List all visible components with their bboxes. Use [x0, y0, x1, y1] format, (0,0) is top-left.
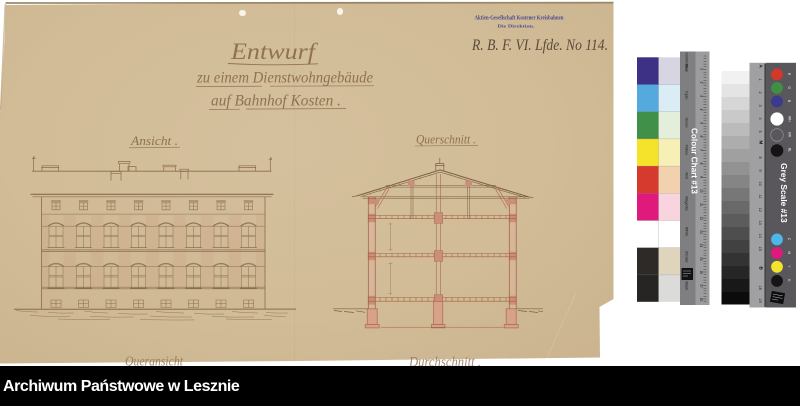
svg-text:Black: Black	[685, 282, 689, 291]
svg-text:Entwurf: Entwurf	[230, 39, 319, 64]
svg-text:M: M	[787, 252, 791, 255]
svg-text:GR: GR	[788, 132, 792, 138]
svg-text:17: 17	[699, 284, 703, 288]
svg-text:3/Color: 3/Color	[685, 251, 689, 263]
svg-text:8: 8	[699, 163, 703, 165]
svg-text:10: 10	[699, 189, 703, 193]
svg-text:13: 13	[758, 221, 762, 225]
svg-text:12: 12	[758, 208, 762, 212]
svg-text:15: 15	[699, 257, 703, 261]
svg-text:14: 14	[699, 244, 703, 248]
svg-text:8: 8	[758, 157, 762, 159]
svg-text:Magenta: Magenta	[685, 197, 689, 211]
svg-text:11: 11	[758, 195, 762, 199]
svg-text:16: 16	[699, 271, 703, 275]
svg-text:2: 2	[758, 92, 762, 94]
svg-text:Aktien-Gesellschaft Kostener K: Aktien-Gesellschaft Kostener Kreisbahnen	[475, 15, 564, 22]
svg-text:BL: BL	[788, 148, 792, 152]
svg-text:White: White	[685, 227, 689, 236]
svg-text:1: 1	[758, 79, 762, 81]
svg-text:19: 19	[758, 299, 762, 303]
svg-text:Die Direktion.: Die Direktion.	[498, 24, 535, 29]
svg-text:4: 4	[699, 109, 703, 111]
svg-text:9: 9	[699, 176, 703, 178]
svg-text:5: 5	[758, 131, 762, 133]
svg-text:Red: Red	[685, 173, 689, 180]
svg-text:Green: Green	[685, 118, 689, 128]
svg-text:Querschnitt .: Querschnitt .	[416, 132, 476, 147]
svg-text:Ansicht .: Ansicht .	[130, 133, 178, 148]
svg-text:12: 12	[699, 217, 703, 221]
svg-text:5: 5	[699, 122, 703, 124]
svg-text:3: 3	[758, 105, 762, 107]
svg-text:11: 11	[699, 203, 703, 207]
svg-text:Yellow: Yellow	[685, 145, 689, 156]
svg-text:15: 15	[758, 247, 762, 251]
svg-text:M: M	[759, 141, 764, 145]
svg-text:Blue: Blue	[685, 64, 689, 71]
svg-text:3: 3	[699, 95, 703, 97]
svg-text:auf Bahnhof Kosten .: auf Bahnhof Kosten .	[211, 93, 341, 110]
svg-text:1: 1	[699, 68, 703, 70]
svg-text:R. B. F. VI. Lfde. No 114.: R. B. F. VI. Lfde. No 114.	[471, 37, 608, 54]
svg-text:Colour Chart #13: Colour Chart #13	[690, 128, 699, 194]
svg-text:14: 14	[758, 234, 762, 238]
svg-text:4: 4	[758, 118, 762, 120]
svg-text:18: 18	[699, 298, 703, 302]
svg-text:13: 13	[699, 230, 703, 234]
svg-text:Cyan: Cyan	[685, 91, 689, 99]
svg-text:2: 2	[699, 82, 703, 84]
svg-text:Grey Scale #13: Grey Scale #13	[779, 163, 789, 223]
svg-text:9: 9	[758, 170, 762, 172]
svg-text:6: 6	[699, 136, 703, 138]
svg-text:WH: WH	[788, 116, 792, 122]
svg-text:zu einem Dienstwohngebäude: zu einem Dienstwohngebäude	[196, 70, 373, 87]
svg-text:G: G	[787, 86, 791, 89]
svg-text:7: 7	[699, 149, 703, 151]
svg-text:10: 10	[758, 182, 762, 186]
svg-text:18: 18	[758, 286, 762, 290]
